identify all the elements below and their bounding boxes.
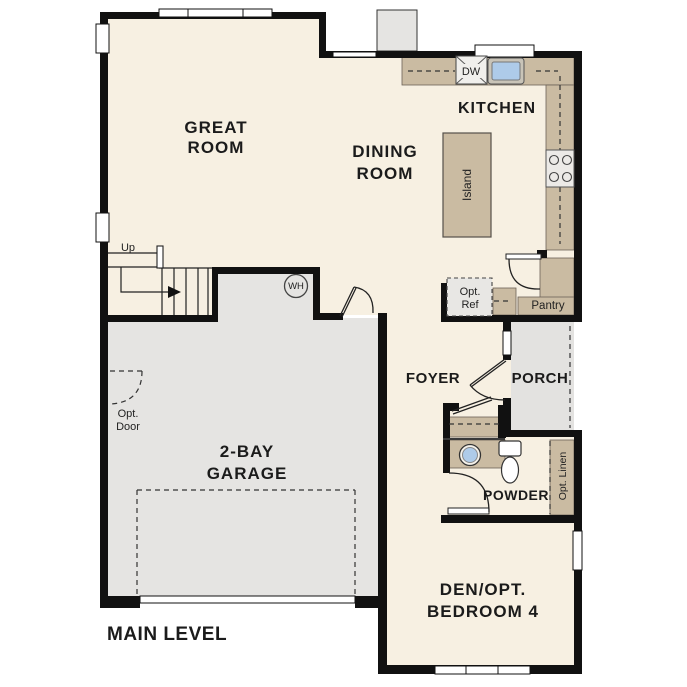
coat-closet-shelf (447, 417, 503, 437)
garage-door (140, 596, 355, 603)
garage-label: 2-BAY (220, 442, 274, 461)
opt-linen-label: Opt. Linen (557, 452, 569, 501)
powder-sink (460, 445, 481, 466)
island-label: Island (460, 169, 474, 201)
garage-floor (108, 274, 378, 598)
opt-door-label: Opt. (118, 408, 139, 420)
porch-label: PORCH (512, 370, 569, 387)
den-right-window (573, 531, 582, 570)
dining-room-label-2: ROOM (357, 164, 414, 183)
stairs-up-label: Up (121, 242, 135, 254)
dining-top-window (333, 52, 376, 57)
garage-label-2: GARAGE (207, 464, 288, 483)
kitchen-label: KITCHEN (458, 100, 536, 117)
great-room-label-2: ROOM (188, 138, 245, 157)
kitchen-sink-window (475, 45, 534, 57)
dishwasher-label: DW (462, 66, 481, 78)
kitchen-sink (488, 58, 524, 84)
water-heater-label: WH (288, 281, 304, 292)
left-window-2 (96, 213, 109, 242)
foyer-sidelight-window (503, 331, 511, 355)
page-title: MAIN LEVEL (107, 624, 227, 645)
opt-ref-label: Opt. (460, 286, 481, 298)
great-room-label: GREAT (184, 118, 247, 137)
great-room-top-window (159, 9, 272, 17)
den-bottom-window (435, 666, 530, 674)
cooktop (546, 150, 574, 187)
left-window-1 (96, 24, 109, 53)
powder-label: POWDER (483, 487, 549, 503)
floorplan-page: GREAT ROOM DINING ROOM KITCHEN FOYER POR… (0, 0, 687, 687)
den-label-2: BEDROOM 4 (427, 602, 539, 621)
chimney-box (377, 10, 417, 51)
opt-ref-label-2: Ref (461, 299, 479, 311)
pantry-label: Pantry (531, 300, 564, 312)
dining-room-label: DINING (352, 142, 418, 161)
foyer-label: FOYER (406, 370, 460, 387)
opt-door-label-2: Door (116, 421, 140, 433)
den-label: DEN/OPT. (440, 580, 526, 599)
floorplan-svg: GREAT ROOM DINING ROOM KITCHEN FOYER POR… (0, 0, 687, 687)
